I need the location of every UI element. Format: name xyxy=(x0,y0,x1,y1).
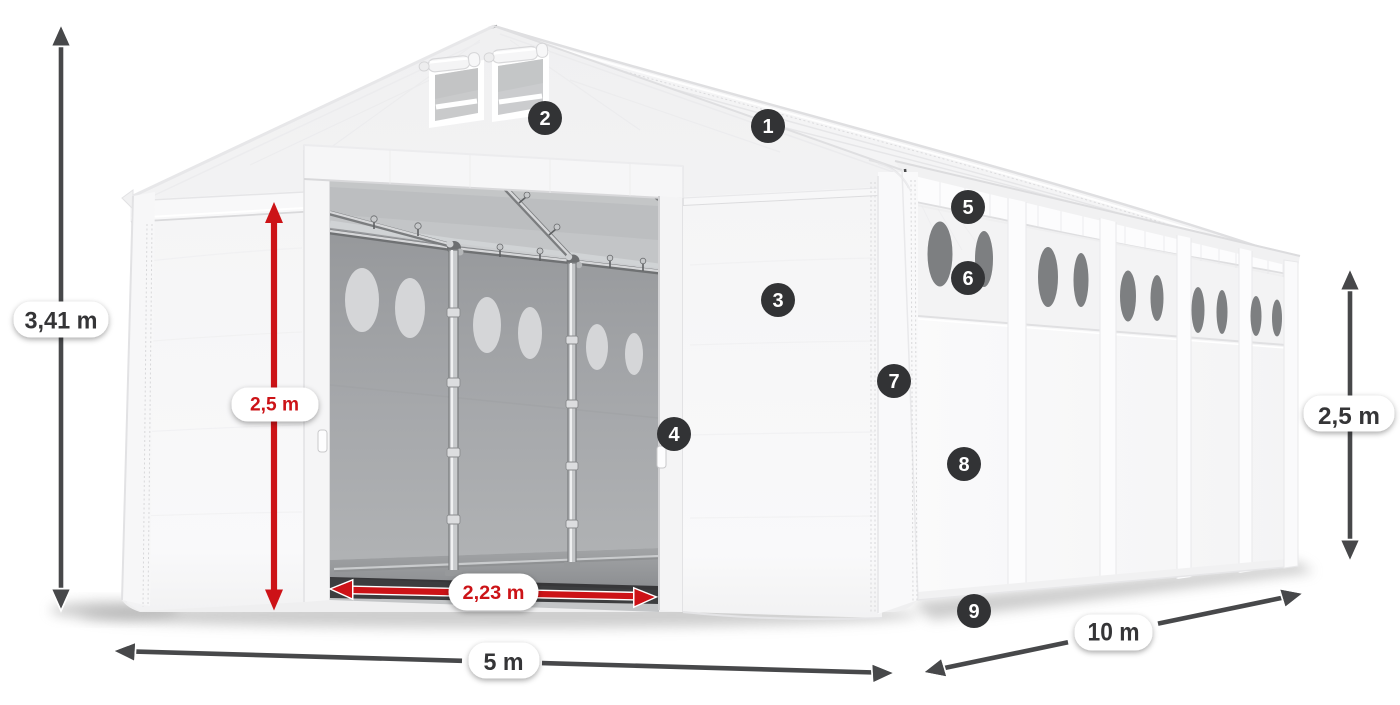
svg-text:6: 6 xyxy=(962,268,973,290)
svg-text:2,5 m: 2,5 m xyxy=(250,393,299,415)
svg-text:4: 4 xyxy=(668,424,680,446)
svg-text:9: 9 xyxy=(968,601,979,623)
svg-text:10 m: 10 m xyxy=(1088,619,1140,647)
svg-text:7: 7 xyxy=(888,371,899,393)
svg-text:3,41 m: 3,41 m xyxy=(25,308,98,335)
svg-text:2: 2 xyxy=(539,108,550,130)
svg-text:5 m: 5 m xyxy=(484,649,524,676)
svg-text:5: 5 xyxy=(962,197,973,219)
svg-text:3: 3 xyxy=(772,290,783,312)
svg-text:8: 8 xyxy=(958,454,969,476)
svg-text:2,5 m: 2,5 m xyxy=(1318,403,1380,430)
svg-text:1: 1 xyxy=(762,116,773,138)
svg-text:2,23 m: 2,23 m xyxy=(463,582,525,604)
